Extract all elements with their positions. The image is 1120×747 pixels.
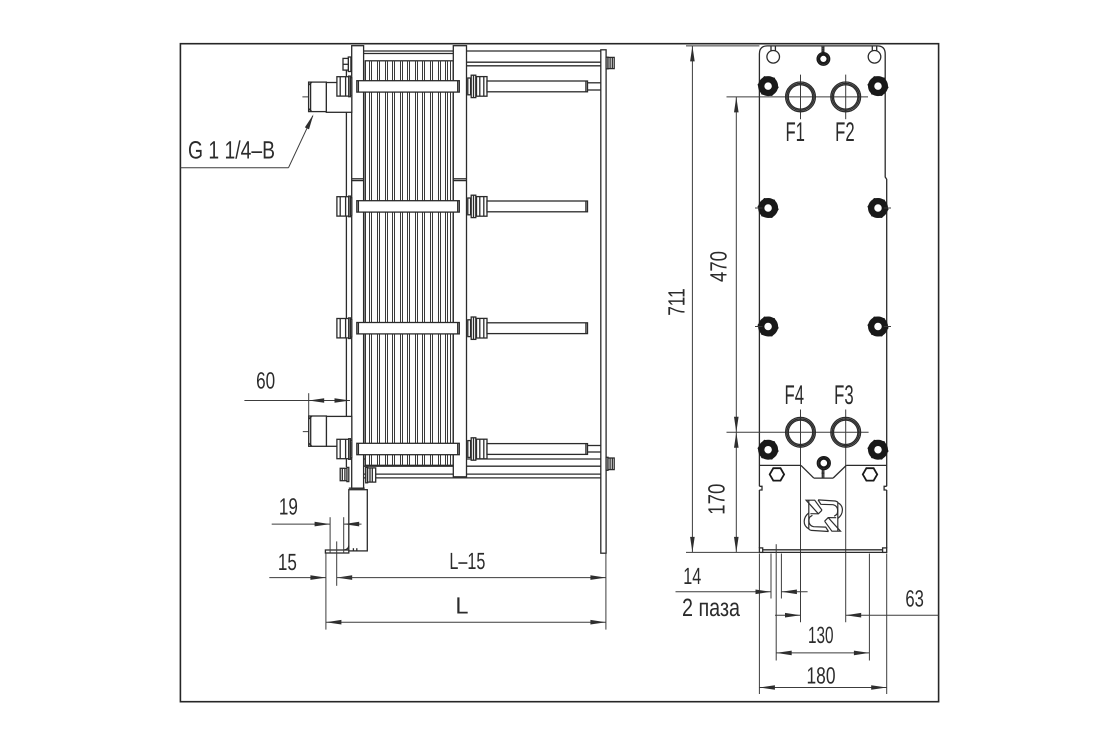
svg-text:F4: F4 <box>785 380 805 410</box>
svg-text:15: 15 <box>278 549 297 575</box>
svg-text:60: 60 <box>256 367 275 393</box>
svg-text:F1: F1 <box>785 117 805 147</box>
svg-text:G 1 1/4–B: G 1 1/4–B <box>188 137 275 165</box>
svg-text:63: 63 <box>905 586 924 612</box>
svg-text:2 паза: 2 паза <box>682 594 740 622</box>
svg-text:711: 711 <box>664 288 690 316</box>
svg-text:130: 130 <box>808 622 834 648</box>
svg-text:19: 19 <box>279 493 298 519</box>
svg-text:L–15: L–15 <box>449 548 485 574</box>
svg-text:L: L <box>455 593 468 619</box>
svg-text:14: 14 <box>683 563 701 589</box>
svg-text:F3: F3 <box>834 380 854 410</box>
svg-text:170: 170 <box>703 484 729 515</box>
svg-text:470: 470 <box>706 251 732 282</box>
svg-text:F2: F2 <box>835 117 855 147</box>
svg-text:180: 180 <box>807 662 836 688</box>
